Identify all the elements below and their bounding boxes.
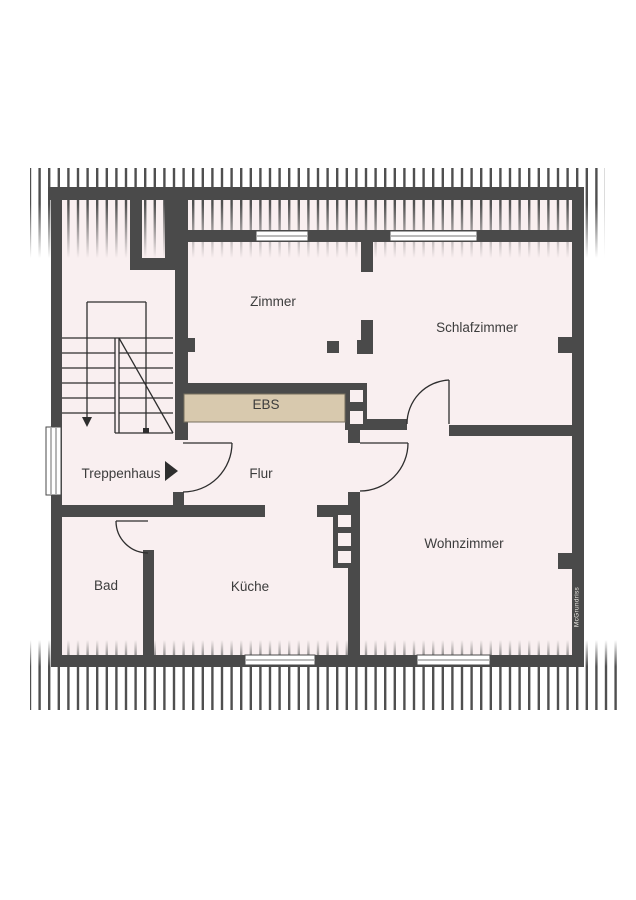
stair-walkline-start-dot (143, 428, 149, 433)
partition-pier (357, 340, 373, 354)
flue-opening (338, 551, 351, 563)
roof-hatching-top (30, 168, 605, 258)
label-wohnzimmer: Wohnzimmer (424, 536, 504, 551)
treppenhaus-door-stub (173, 492, 184, 506)
floor-plan-canvas: Zimmer Schlafzimmer EBS Treppenhaus Flur… (0, 0, 636, 900)
label-ebs: EBS (252, 397, 279, 412)
free-pillar (327, 341, 339, 353)
outer-wall-bottom (51, 655, 584, 667)
stairwell-wall-pier (175, 338, 195, 352)
label-flur: Flur (249, 466, 273, 481)
bad-kueche-wall (143, 550, 154, 657)
label-schlafzimmer: Schlafzimmer (436, 320, 518, 335)
door-stub-a (348, 430, 360, 443)
partition-zimmer-schlafzimmer-upper (361, 242, 373, 272)
outer-wall-top (48, 187, 584, 200)
label-treppenhaus: Treppenhaus (81, 466, 160, 481)
schlafzimmer-wohnzimmer-wall (449, 425, 572, 436)
window-left (46, 427, 61, 495)
flue-opening (350, 411, 363, 424)
flue-opening (338, 533, 351, 546)
right-wall-pier-1 (558, 337, 572, 353)
flue-opening (338, 515, 351, 527)
ebs-top-wall (177, 383, 355, 394)
label-zimmer: Zimmer (250, 294, 296, 309)
chimney-to-door-wall (365, 419, 407, 430)
roof-hatching-bottom (30, 640, 618, 710)
watermark: McGrundriss (574, 586, 581, 627)
door-stub-b (348, 492, 360, 506)
flue-opening (350, 390, 363, 402)
corridor-bottom-wall (51, 505, 265, 517)
rooms-top-wall (177, 230, 572, 242)
floor-plan-page: Zimmer Schlafzimmer EBS Treppenhaus Flur… (0, 0, 636, 900)
label-bad: Bad (94, 578, 118, 593)
right-wall-pier-2 (558, 553, 572, 569)
label-kueche: Küche (231, 579, 269, 594)
niche-wall-bottom (130, 258, 177, 270)
